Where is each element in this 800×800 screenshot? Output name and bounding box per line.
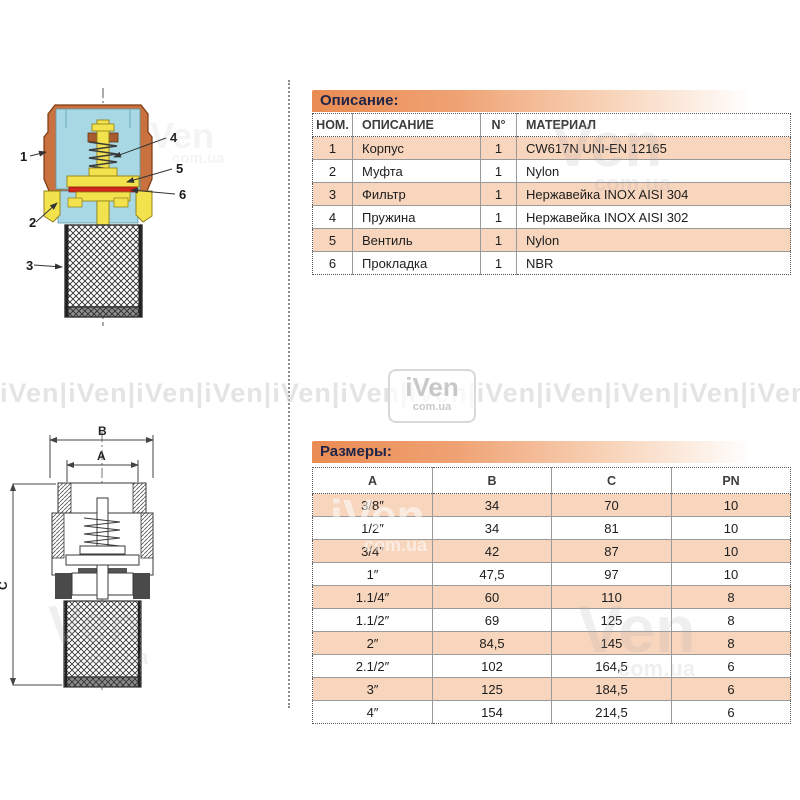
watermark-brand: iVen (390, 373, 474, 401)
column-header: B (433, 468, 552, 494)
watermark-ghost: Ven com.ua (578, 600, 695, 679)
table-cell: 6 (313, 252, 353, 275)
dim-label-b: B (98, 424, 107, 438)
table-cell: 1 (481, 252, 517, 275)
table-row: 4″154214,56 (313, 701, 791, 724)
dimensions-section-title: Размеры: (320, 443, 392, 460)
callout-6: 6 (179, 187, 186, 202)
table-cell: 1 (481, 206, 517, 229)
dimensions-section-bar: Размеры: (312, 441, 790, 463)
callout-2: 2 (29, 215, 36, 230)
column-header: C (552, 468, 672, 494)
table-cell: NBR (517, 252, 791, 275)
column-header: N° (481, 114, 517, 137)
table-row: 2.1/2″102164,56 (313, 655, 791, 678)
watermark-domain: com.ua (390, 401, 474, 413)
table-cell: 102 (433, 655, 552, 678)
watermark-ghost: Ven com.ua (48, 602, 148, 667)
valve-outline (52, 483, 153, 599)
table-cell: 1 (481, 137, 517, 160)
table-cell: Нержавейка INOX AISI 302 (517, 206, 791, 229)
dim-label-a: A (97, 449, 106, 463)
table-row: 1″47,59710 (313, 563, 791, 586)
table-cell: 47,5 (433, 563, 552, 586)
table-cell: 1.1/2″ (313, 609, 433, 632)
table-cell: 1″ (313, 563, 433, 586)
table-cell: 81 (552, 517, 672, 540)
table-cell: 2 (313, 160, 353, 183)
table-cell: 10 (672, 540, 791, 563)
table-cell: 1.1/4″ (313, 586, 433, 609)
table-cell: 70 (552, 494, 672, 517)
column-header: PN (672, 468, 791, 494)
table-row: 4Пружина1Нержавейка INOX AISI 302 (313, 206, 791, 229)
table-cell: 10 (672, 563, 791, 586)
table-cell: 1 (481, 183, 517, 206)
valve-cutaway-diagram: 1 2 3 4 5 6 (10, 80, 280, 330)
dim-label-c: C (0, 581, 10, 590)
column-header: НОМ. (313, 114, 353, 137)
table-row: 5Вентиль1Nylon (313, 229, 791, 252)
table-cell: 97 (552, 563, 672, 586)
table-cell: 3″ (313, 678, 433, 701)
table-cell: 10 (672, 517, 791, 540)
filter-mesh (65, 225, 142, 317)
watermark-ghost: Ven com.ua (150, 120, 225, 166)
table-cell: 84,5 (433, 632, 552, 655)
callout-3: 3 (26, 258, 33, 273)
table-cell: 214,5 (552, 701, 672, 724)
datasheet-page: 1 2 3 4 5 6 (0, 0, 800, 800)
dim-a (67, 460, 138, 482)
callout-1: 1 (20, 149, 27, 164)
table-cell: 87 (552, 540, 672, 563)
table-cell: Муфта (353, 160, 481, 183)
table-cell: 42 (433, 540, 552, 563)
column-header: ОПИСАНИЕ (353, 114, 481, 137)
watermark-badge: iVen com.ua (388, 369, 476, 423)
table-cell: 34 (433, 494, 552, 517)
watermark-ghost: iVen com.ua (330, 496, 427, 554)
table-cell: 60 (433, 586, 552, 609)
table-cell: 1 (313, 137, 353, 160)
table-row: 1.1/4″601108 (313, 586, 791, 609)
table-cell: Корпус (353, 137, 481, 160)
table-cell: 5 (313, 229, 353, 252)
gasket (69, 187, 137, 192)
description-section-title: Описание: (320, 92, 398, 109)
table-cell: 34 (433, 517, 552, 540)
description-section-bar: Описание: (312, 90, 790, 112)
table-row: 1.1/2″691258 (313, 609, 791, 632)
table-row: 6Прокладка1NBR (313, 252, 791, 275)
table-cell: Пружина (353, 206, 481, 229)
table-cell: 1 (481, 229, 517, 252)
watermark-ghost: Ven com.ua (552, 118, 671, 194)
table-row: 2″84,51458 (313, 632, 791, 655)
table-cell: 4″ (313, 701, 433, 724)
table-cell: Nylon (517, 229, 791, 252)
table-cell: 3 (313, 183, 353, 206)
table-cell: 10 (672, 494, 791, 517)
table-cell: 2.1/2″ (313, 655, 433, 678)
table-cell: 6 (672, 701, 791, 724)
table-cell: Фильтр (353, 183, 481, 206)
table-cell: 4 (313, 206, 353, 229)
table-cell: 125 (433, 678, 552, 701)
table-cell: Вентиль (353, 229, 481, 252)
table-cell: 1 (481, 160, 517, 183)
table-cell: 2″ (313, 632, 433, 655)
table-cell: 154 (433, 701, 552, 724)
table-row: 3″125184,56 (313, 678, 791, 701)
table-cell: 69 (433, 609, 552, 632)
table-cell: Прокладка (353, 252, 481, 275)
